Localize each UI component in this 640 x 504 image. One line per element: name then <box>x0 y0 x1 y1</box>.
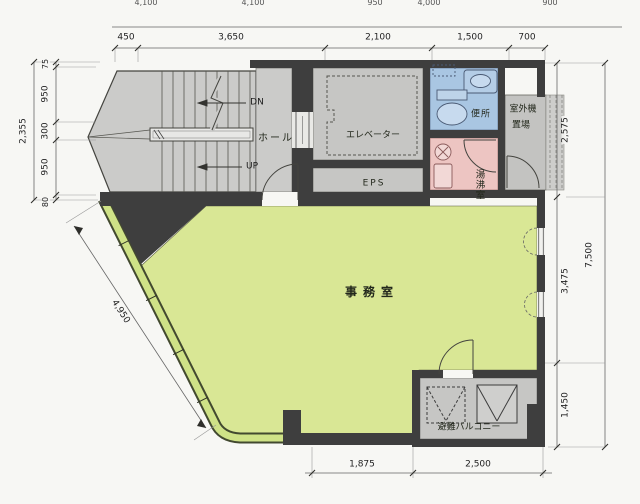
dim-top-upper-1: 4,100 <box>135 0 158 7</box>
dim-right-2575: 2,575 <box>562 116 571 144</box>
dim-left-950a: 950 <box>42 84 51 103</box>
dim-top-450: 450 <box>116 34 135 43</box>
dim-top-2100: 2,100 <box>364 34 392 43</box>
dim-right-total: 7,500 <box>586 241 595 269</box>
dim-top-700: 700 <box>517 34 536 43</box>
kitchenette-fixtures <box>434 144 452 188</box>
elevator-door <box>292 112 313 148</box>
dim-right-3475: 3,475 <box>562 267 571 295</box>
dim-top-upper-4: 4,000 <box>418 0 441 7</box>
dim-bottom-2500: 2,500 <box>464 461 492 470</box>
dim-left-950b: 950 <box>42 157 51 176</box>
room-label-office: 事務室 <box>345 286 399 298</box>
dim-top-upper-3: 950 <box>367 0 382 7</box>
room-label-toilet: 便所 <box>471 111 491 120</box>
stair-up-label: UP <box>246 163 258 172</box>
room-label-hall: ホール <box>258 134 294 144</box>
dim-right-1450: 1,450 <box>562 391 571 419</box>
dim-bottom-1875: 1,875 <box>348 461 376 470</box>
dim-top-1500: 1,500 <box>456 34 484 43</box>
dim-left-75: 75 <box>42 58 50 70</box>
stair-down-label: DN <box>250 99 264 108</box>
balcony-door-opening <box>443 370 473 378</box>
room-label-outdoor-unit-line1: 室外機 <box>509 106 536 115</box>
room-label-outdoor-unit-line2: 置場 <box>512 122 530 131</box>
dim-top-3650: 3,650 <box>217 34 245 43</box>
dim-left-80: 80 <box>42 196 50 208</box>
elevator-shaft-floor <box>313 68 423 160</box>
dim-top-upper-2: 4,100 <box>242 0 265 7</box>
floor-plan-page: 4,100 4,100 950 4,000 900 450 3,650 2,10… <box>0 0 640 504</box>
room-label-balcony: 避難バルコニー <box>438 424 501 433</box>
room-label-kitchenette: 湯沸室 <box>474 169 484 201</box>
hall-door-opening <box>262 192 298 206</box>
dim-top-upper-5: 900 <box>542 0 557 7</box>
room-label-elevator: エレベーター <box>346 132 400 141</box>
dim-left-total: 2,355 <box>20 117 29 145</box>
dim-left-300: 300 <box>42 121 51 140</box>
floor-plan-drawing <box>0 0 640 504</box>
room-label-eps: EPS <box>363 180 386 189</box>
